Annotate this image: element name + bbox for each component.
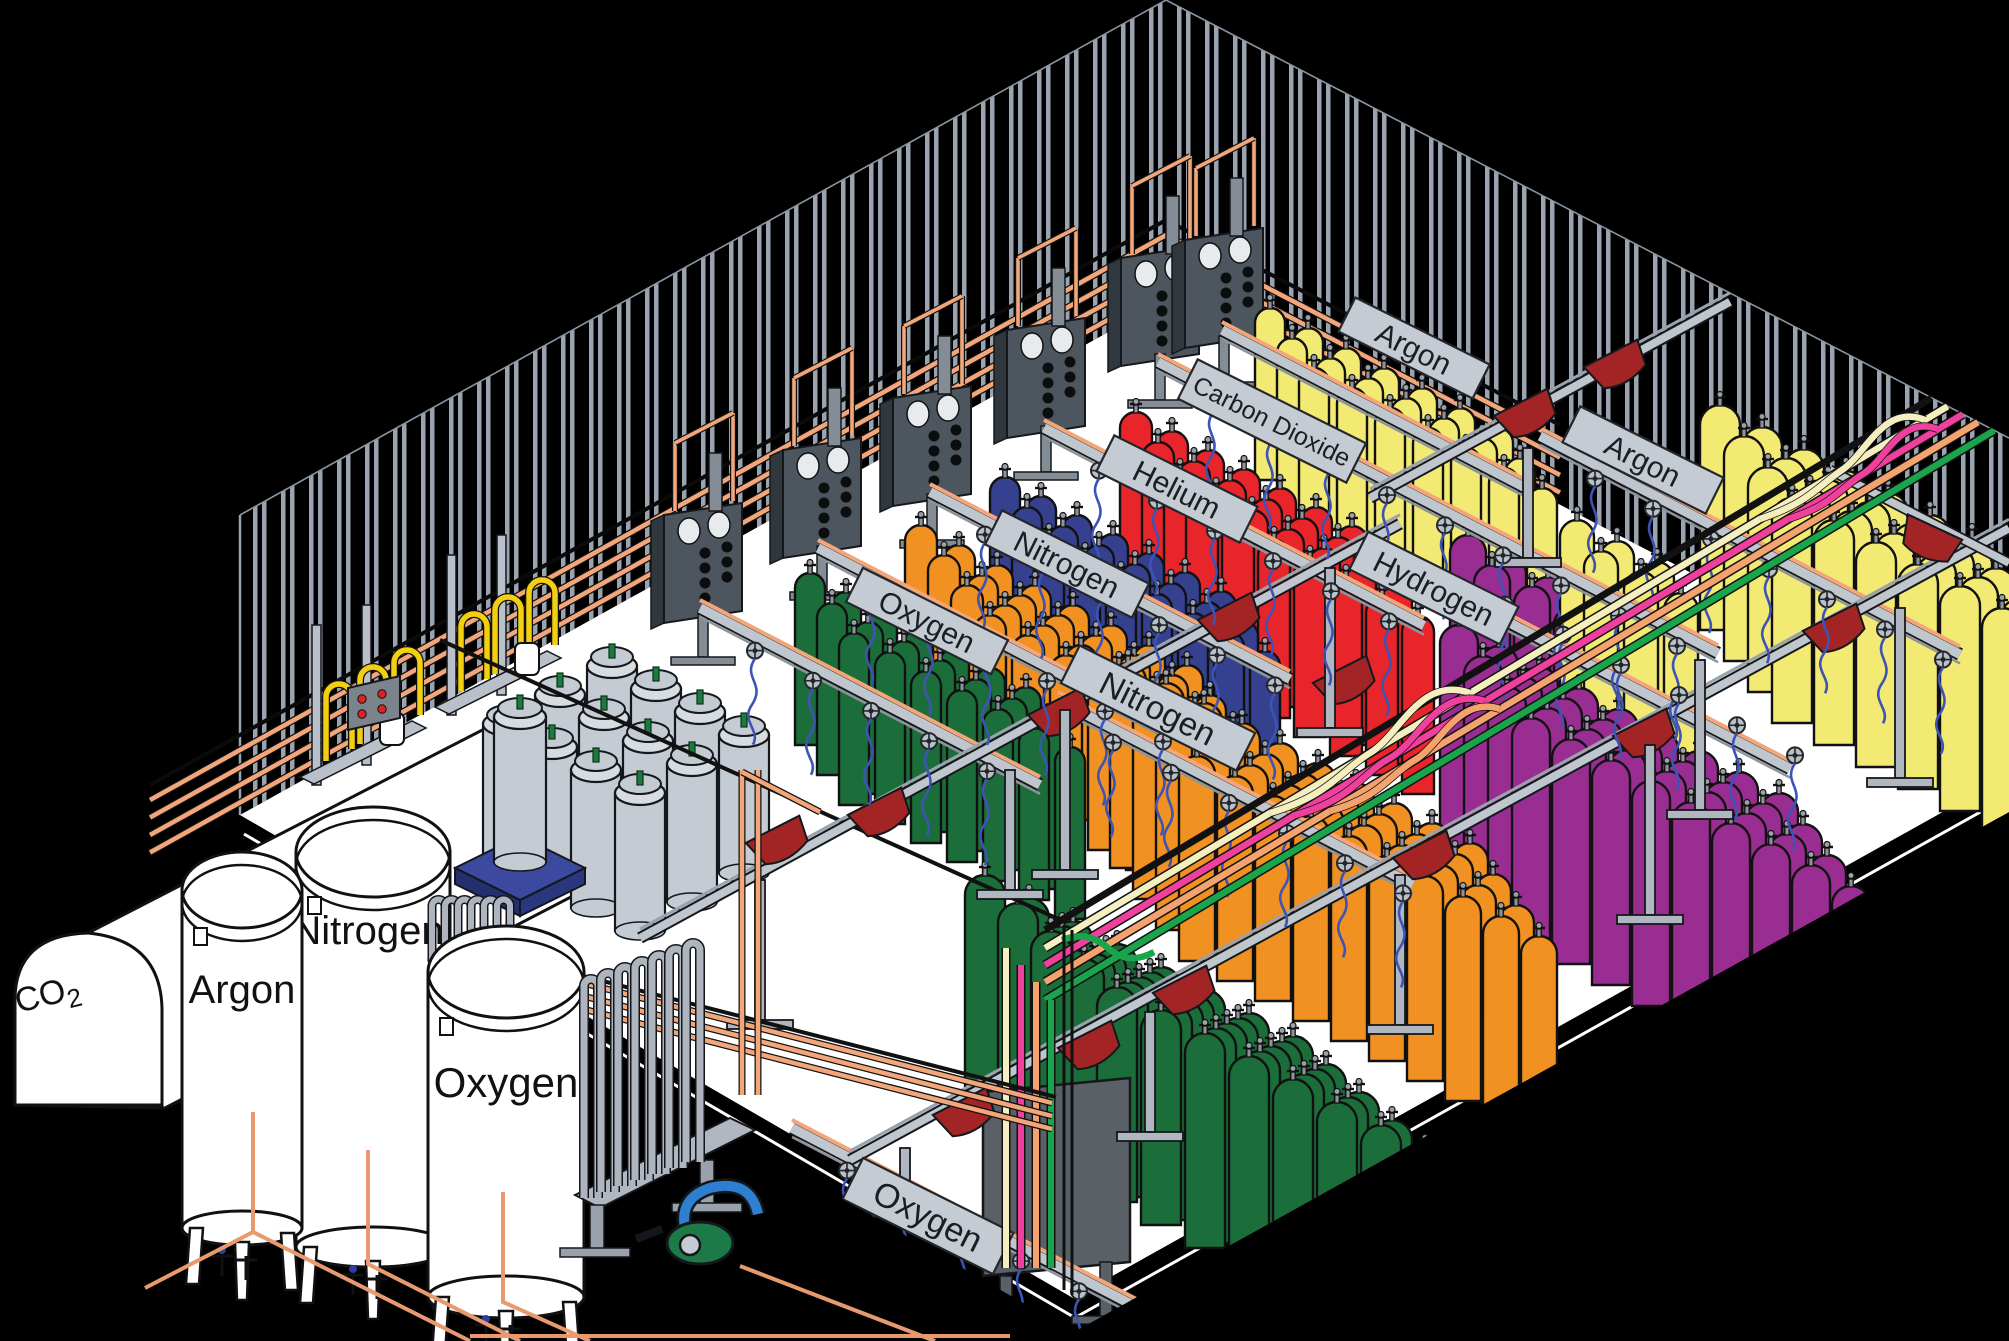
svg-text:Argon: Argon	[189, 968, 296, 1012]
svg-text:Nitrogen: Nitrogen	[292, 909, 443, 953]
svg-text:Oxygen: Oxygen	[434, 1059, 579, 1106]
